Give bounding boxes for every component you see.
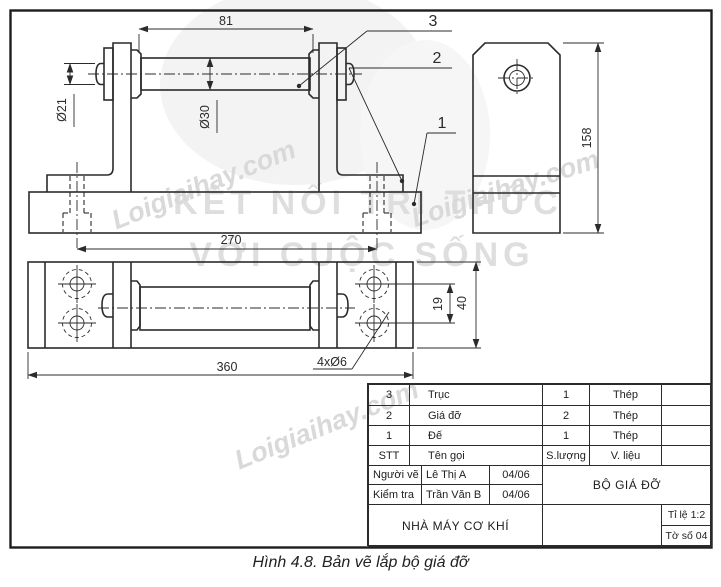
hole [58,304,96,342]
header-qty: S.lượng [542,445,590,466]
part-material: Thép [589,405,662,426]
part-label-1: 1 [438,115,447,132]
part-qty: 2 [542,405,590,426]
dim-21-label: Ø21 [55,98,69,122]
part-name: Đế [409,425,543,446]
dim-81-label: 81 [219,14,233,28]
checked-by-name: Trần Văn B [421,484,490,505]
dim-19-label: 19 [431,297,445,311]
header-material: V. liệu [589,445,662,466]
top-view: 360 19 40 4xØ6 [28,262,481,379]
dim-270-label: 270 [221,233,242,247]
part-no: 1 [368,425,410,446]
stub-top-left [102,294,113,317]
base-plate-top [28,262,413,348]
assembly-name: BỘ GIÁ ĐỠ [542,465,712,505]
drawn-by-label: Người vẽ [368,465,422,485]
empty-cell [542,504,662,547]
title-block: 3 Trục 1 Thép 2 Giá đỡ 2 Thép 1 Đế 1 Thé… [367,383,711,546]
drawing-page: KẾT NỐI TRI THỨC VỚI CUỘC SỐNG Loigiaiha… [0,0,721,587]
drawn-date: 04/06 [489,465,543,485]
part-note [661,384,712,406]
header-name: Tên gọi [409,445,543,466]
company-name: NHÀ MÁY CƠ KHÍ [368,504,543,547]
part-note [661,405,712,426]
part-name: Trục [409,384,543,406]
part-note [661,425,712,446]
part-label-2: 2 [433,50,442,67]
part-no: 3 [368,384,410,406]
stub-top-right [337,294,348,317]
hole [58,265,96,303]
part-material: Thép [589,384,662,406]
dim-30-label: Ø30 [198,105,212,129]
scale-cell: Tỉ lệ 1:2 [661,504,712,526]
checked-by-label: Kiểm tra [368,484,422,505]
dim-40-label: 40 [455,296,469,310]
part-no: 2 [368,405,410,426]
hub-top-right [310,281,319,330]
header-note [661,445,712,466]
part-name: Giá đỡ [409,405,543,426]
part-qty: 1 [542,425,590,446]
shaft-top [140,287,310,330]
figure-caption: Hình 4.8. Bản vẽ lắp bộ giá đỡ [0,554,721,572]
dim-4xd6-label: 4xØ6 [317,355,347,369]
dim-360-label: 360 [217,360,238,374]
checked-date: 04/06 [489,484,543,505]
dim-158-label: 158 [580,128,594,149]
drawn-by-name: Lê Thị A [421,465,490,485]
part-material: Thép [589,425,662,446]
part-label-3: 3 [429,13,438,30]
part-qty: 1 [542,384,590,406]
header-no: STT [368,445,410,466]
sheet-cell: Tờ số 04 [661,525,712,547]
hub-top-left [131,281,140,330]
